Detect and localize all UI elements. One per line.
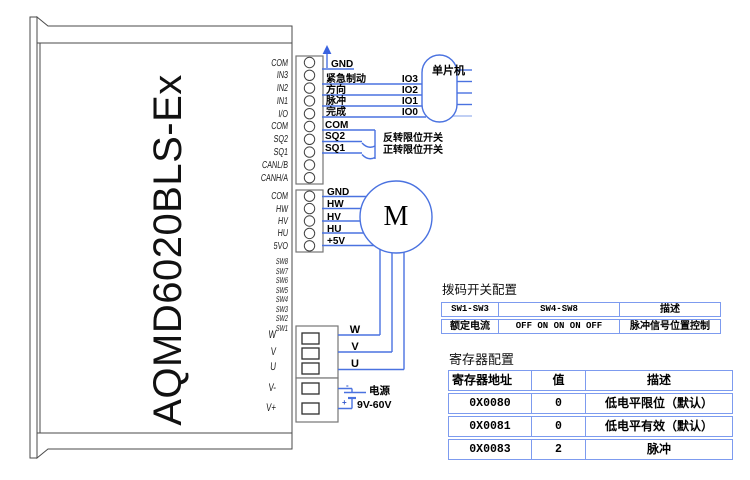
power-voltage-label: 9V-60V [357, 400, 391, 410]
limit-switch-symbol [362, 155, 375, 159]
dip-pin-label: SW8 [248, 257, 289, 266]
dip-pin-label: SW2 [248, 314, 289, 323]
motor-label: M [382, 202, 410, 232]
hall-wire-label: HV [327, 213, 367, 223]
reg-cell: 0 [532, 393, 586, 414]
mcu-io-label: IO2 [356, 86, 418, 96]
hall-wire-label: HU [327, 225, 367, 235]
reg-cell: 0X0080 [448, 393, 532, 414]
reg-cell: 0X0081 [448, 416, 532, 437]
mounting-plate [30, 17, 37, 458]
hall-pin-label: 5VO [244, 241, 288, 252]
reg-col-header: 寄存器地址 [448, 370, 532, 391]
bottom-flange [37, 433, 292, 458]
gnd-arrow-icon [323, 45, 332, 54]
hall-pin-label: COM [244, 191, 288, 202]
limit-switch-desc: 反转限位开关 [383, 133, 463, 144]
dip-pin-label: SW4 [248, 295, 289, 304]
hall-wire-label: +5V [327, 237, 367, 247]
io-pin-label: SQ2 [244, 134, 288, 145]
limit-switch-pin-label: SQ1 [325, 144, 355, 154]
io-pin-circles [304, 57, 314, 251]
dip-table: SW1-SW3 SW4-SW8 描述 额定电流 OFF ON ON ON OFF… [441, 300, 721, 336]
io-pin-label: SQ1 [244, 147, 288, 158]
dip-col-header: SW1-SW3 [441, 302, 499, 317]
table-row: 0X0083 2 脉冲 [448, 439, 733, 460]
limit-switch-desc: 正转限位开关 [383, 145, 463, 156]
dip-cell: 额定电流 [441, 319, 499, 334]
reg-col-header: 值 [532, 370, 586, 391]
device-model-label: AQMD6020BLS-Ex [140, 70, 196, 430]
wiring-diagram: AQMD6020BLS-Ex GND COM 单片机 M 电源 9V-60V -… [0, 0, 750, 480]
phase-wire-label: V [344, 342, 366, 353]
phase-wire-label: U [344, 359, 366, 370]
dip-col-header: 描述 [620, 302, 721, 317]
hall-wire-label: HW [327, 200, 367, 210]
io-pin-label: I/O [244, 109, 288, 120]
dip-pin-label: SW6 [248, 276, 289, 285]
reg-cell: 低电平有效（默认） [586, 416, 733, 437]
power-pin-label: W [241, 329, 277, 341]
gnd-label-top: GND [331, 60, 353, 70]
dip-table-title: 拨码开关配置 [442, 279, 517, 298]
io-pin-label: COM [244, 121, 288, 132]
reg-cell: 低电平限位（默认） [586, 393, 733, 414]
com-label-mid: COM [325, 121, 348, 131]
table-row: 额定电流 OFF ON ON ON OFF 脉冲信号位置控制 [441, 319, 721, 334]
table-row: 0X0080 0 低电平限位（默认） [448, 393, 733, 414]
reg-col-header: 描述 [586, 370, 733, 391]
hall-pin-label: HU [244, 228, 288, 239]
hall-wire-label: GND [327, 188, 367, 198]
mcu-io-label: IO1 [356, 97, 418, 107]
register-table-title: 寄存器配置 [449, 349, 514, 368]
reg-cell: 脉冲 [586, 439, 733, 460]
register-table: 寄存器地址 值 描述 0X0080 0 低电平限位（默认） 0X0081 0 低… [448, 368, 733, 462]
power-pin-label: V- [241, 382, 277, 394]
power-pin-label: V [241, 346, 277, 358]
phase-wire-label: W [344, 325, 366, 336]
top-flange [37, 17, 292, 43]
io-pin-label: IN3 [244, 70, 288, 81]
dip-cell: 脉冲信号位置控制 [620, 319, 721, 334]
limit-switch-pin-label: SQ2 [325, 132, 355, 142]
io-pin-label: IN2 [244, 83, 288, 94]
hall-pin-label: HV [244, 216, 288, 227]
limit-switch-symbol [362, 143, 375, 147]
io-pin-label: CANL/B [244, 160, 288, 171]
io-pin-label: IN1 [244, 96, 288, 107]
reg-cell: 0X0083 [448, 439, 532, 460]
reg-cell: 0 [532, 416, 586, 437]
io-pin-label: CANH/A [244, 173, 288, 184]
power-supply-label: 电源 [369, 386, 390, 396]
battery-plus-sign: + [342, 399, 347, 407]
table-row: 0X0081 0 低电平有效（默认） [448, 416, 733, 437]
battery-minus-sign: - [346, 382, 349, 390]
mcu-label: 单片机 [432, 63, 446, 79]
power-pin-label: U [241, 361, 277, 373]
hall-pin-label: HW [244, 204, 288, 215]
mcu-io-label: IO0 [356, 108, 418, 118]
dip-cell: OFF ON ON ON OFF [499, 319, 620, 334]
io-pin-label: COM [244, 58, 288, 69]
dip-col-header: SW4-SW8 [499, 302, 620, 317]
reg-cell: 2 [532, 439, 586, 460]
power-pin-label: V+ [241, 402, 277, 414]
mcu-io-label: IO3 [356, 75, 418, 85]
